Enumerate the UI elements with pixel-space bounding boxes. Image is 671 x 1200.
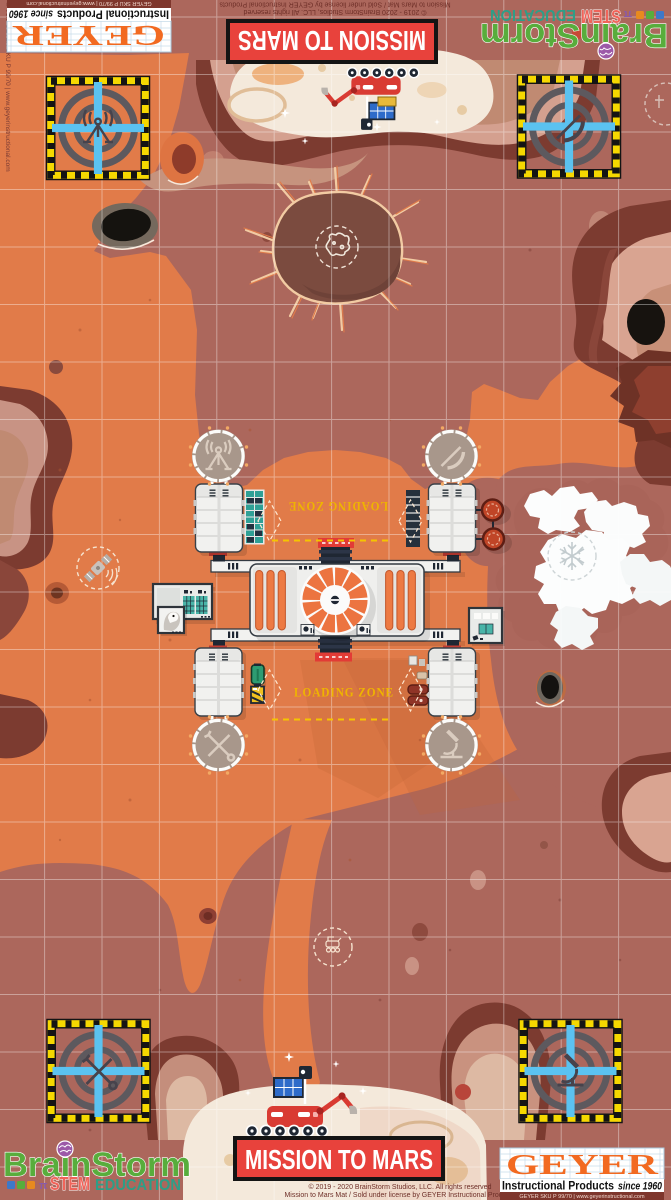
svg-text:© 2019 - 2020 BrainStorm Studi: © 2019 - 2020 BrainStorm Studios, LLC. A… <box>309 1183 492 1191</box>
svg-text:GEYER: GEYER <box>506 1149 660 1181</box>
svg-text:GEYER SKU P 99/70 | www.geyeri: GEYER SKU P 99/70 | www.geyerinstruction… <box>519 1194 645 1200</box>
svg-text:LOADING ZONE: LOADING ZONE <box>288 499 388 513</box>
svg-text:EDUCATION: EDUCATION <box>95 1177 181 1194</box>
svg-text:LOADING ZONE: LOADING ZONE <box>294 686 394 700</box>
svg-text:© 2019 - 2020 BrainStorm Studi: © 2019 - 2020 BrainStorm Studios, LLC. A… <box>243 8 426 16</box>
svg-text:Mission to Mars Mat / Sold und: Mission to Mars Mat / Sold under license… <box>219 1 451 8</box>
svg-text:Mission to Mars Mat / Sold und: Mission to Mars Mat / Sold under license… <box>284 1192 516 1199</box>
svg-text:Instructional Products: Instructional Products <box>502 1181 614 1193</box>
svg-text:since 1960: since 1960 <box>618 1181 663 1193</box>
svg-text:MISSION TO MARS: MISSION TO MARS <box>245 1144 433 1175</box>
svg-text:π: π <box>39 1180 48 1192</box>
svg-text:STEM: STEM <box>50 1174 90 1194</box>
